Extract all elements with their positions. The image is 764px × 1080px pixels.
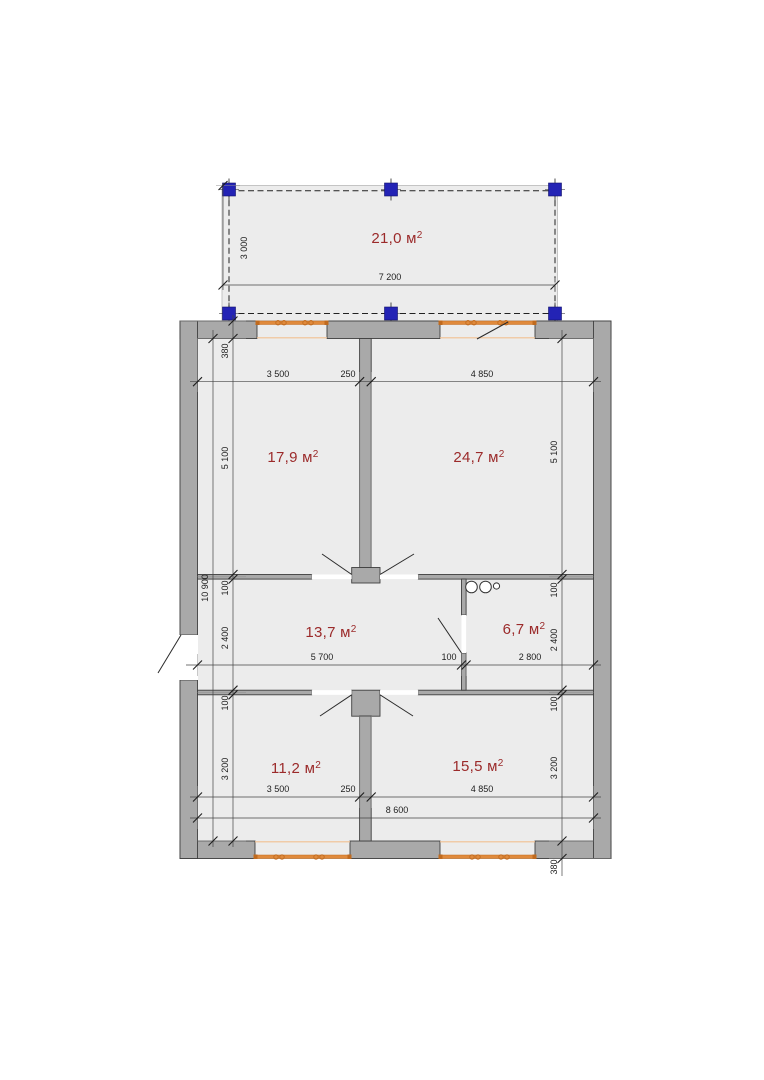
window-strip bbox=[440, 321, 535, 325]
dimension-label: 100 bbox=[220, 580, 230, 595]
door-opening bbox=[380, 575, 418, 580]
window-end-cap bbox=[254, 855, 258, 860]
room-label-terrace: 21,0 м2 bbox=[371, 230, 422, 247]
window-strip bbox=[257, 321, 327, 325]
dimension-label: 3 000 bbox=[239, 237, 249, 260]
dimension-label: 100 bbox=[549, 696, 559, 711]
room-label-hall-13-7: 13,7 м2 bbox=[305, 624, 356, 641]
room-label-room-15-5: 15,5 м2 bbox=[452, 758, 503, 775]
wall-segment bbox=[352, 568, 380, 584]
dimension-label: 2 400 bbox=[549, 629, 559, 652]
door-opening bbox=[380, 690, 418, 695]
dimension-label: 3 500 bbox=[267, 784, 290, 794]
sink-bowl-icon bbox=[466, 581, 478, 593]
terrace-floor bbox=[222, 186, 558, 322]
dimension-label: 3 500 bbox=[267, 369, 290, 379]
dimension-label: 3 200 bbox=[549, 757, 559, 780]
window-end-cap bbox=[325, 321, 329, 326]
terrace-post bbox=[223, 307, 236, 320]
room-label-bath-6-7: 6,7 м2 bbox=[503, 621, 546, 638]
dimension-label: 250 bbox=[340, 784, 355, 794]
wall-segment bbox=[360, 339, 372, 568]
door-opening bbox=[180, 635, 199, 680]
room-label-room-17-9: 17,9 м2 bbox=[267, 449, 318, 466]
dimension-label: 4 850 bbox=[471, 369, 494, 379]
dimension-label: 3 200 bbox=[220, 758, 230, 781]
wall-segment bbox=[462, 579, 467, 615]
dimension-label: 7 200 bbox=[379, 272, 402, 282]
dimension-label: 4 850 bbox=[471, 784, 494, 794]
terrace bbox=[219, 179, 565, 325]
wall-segment bbox=[350, 841, 440, 859]
window-strip bbox=[255, 855, 350, 859]
wall-segment bbox=[180, 321, 198, 635]
dimension-label: 5 100 bbox=[220, 447, 230, 470]
dimension-label: 100 bbox=[441, 652, 456, 662]
window-end-cap bbox=[533, 321, 537, 326]
dimension-label: 10 900 bbox=[200, 574, 210, 602]
door-opening bbox=[462, 615, 467, 653]
terrace-post bbox=[549, 307, 562, 320]
wall-segment bbox=[327, 321, 440, 339]
door-opening bbox=[312, 575, 352, 580]
room-label-room-11-2: 11,2 м2 bbox=[271, 760, 321, 777]
faucet-icon bbox=[493, 583, 499, 589]
house-floor bbox=[180, 321, 611, 859]
terrace-post bbox=[385, 183, 398, 196]
terrace-post bbox=[223, 183, 236, 196]
dimension-label: 250 bbox=[340, 369, 355, 379]
terrace-post bbox=[385, 307, 398, 320]
window-end-cap bbox=[439, 855, 443, 860]
wall-segment bbox=[360, 716, 372, 841]
wall-segment bbox=[180, 680, 198, 859]
window-end-cap bbox=[348, 855, 352, 860]
wall-segment bbox=[352, 690, 380, 716]
floor-plan-drawing: ГИПЕРНН.РУГИПЕРНН.РУГИПЕРНН.РУГИПЕРНН.РУ… bbox=[0, 0, 764, 1080]
dimension-label: 2 400 bbox=[220, 627, 230, 650]
dimension-label: 380 bbox=[220, 343, 230, 358]
window-end-cap bbox=[439, 321, 443, 326]
dimension-label: 5 100 bbox=[549, 441, 559, 464]
dimension-label: 380 bbox=[549, 859, 559, 874]
sink-bowl-icon bbox=[480, 581, 492, 593]
window-strip bbox=[440, 855, 535, 859]
door-swing-entry bbox=[158, 635, 181, 673]
wall-segment bbox=[594, 321, 612, 859]
room-label-room-24-7: 24,7 м2 bbox=[453, 449, 504, 466]
window-end-cap bbox=[533, 855, 537, 860]
door-opening bbox=[312, 690, 352, 695]
dimension-label: 2 800 bbox=[519, 652, 542, 662]
window-end-cap bbox=[256, 321, 260, 326]
dimension-label: 100 bbox=[220, 695, 230, 710]
wall-segment bbox=[462, 653, 467, 690]
floor-plan-page: ГИПЕРНН.РУГИПЕРНН.РУГИПЕРНН.РУГИПЕРНН.РУ… bbox=[0, 0, 764, 1080]
dimension-label: 5 700 bbox=[311, 652, 334, 662]
terrace-post bbox=[549, 183, 562, 196]
dimension-label: 100 bbox=[549, 582, 559, 597]
dimension-label: 8 600 bbox=[386, 805, 409, 815]
